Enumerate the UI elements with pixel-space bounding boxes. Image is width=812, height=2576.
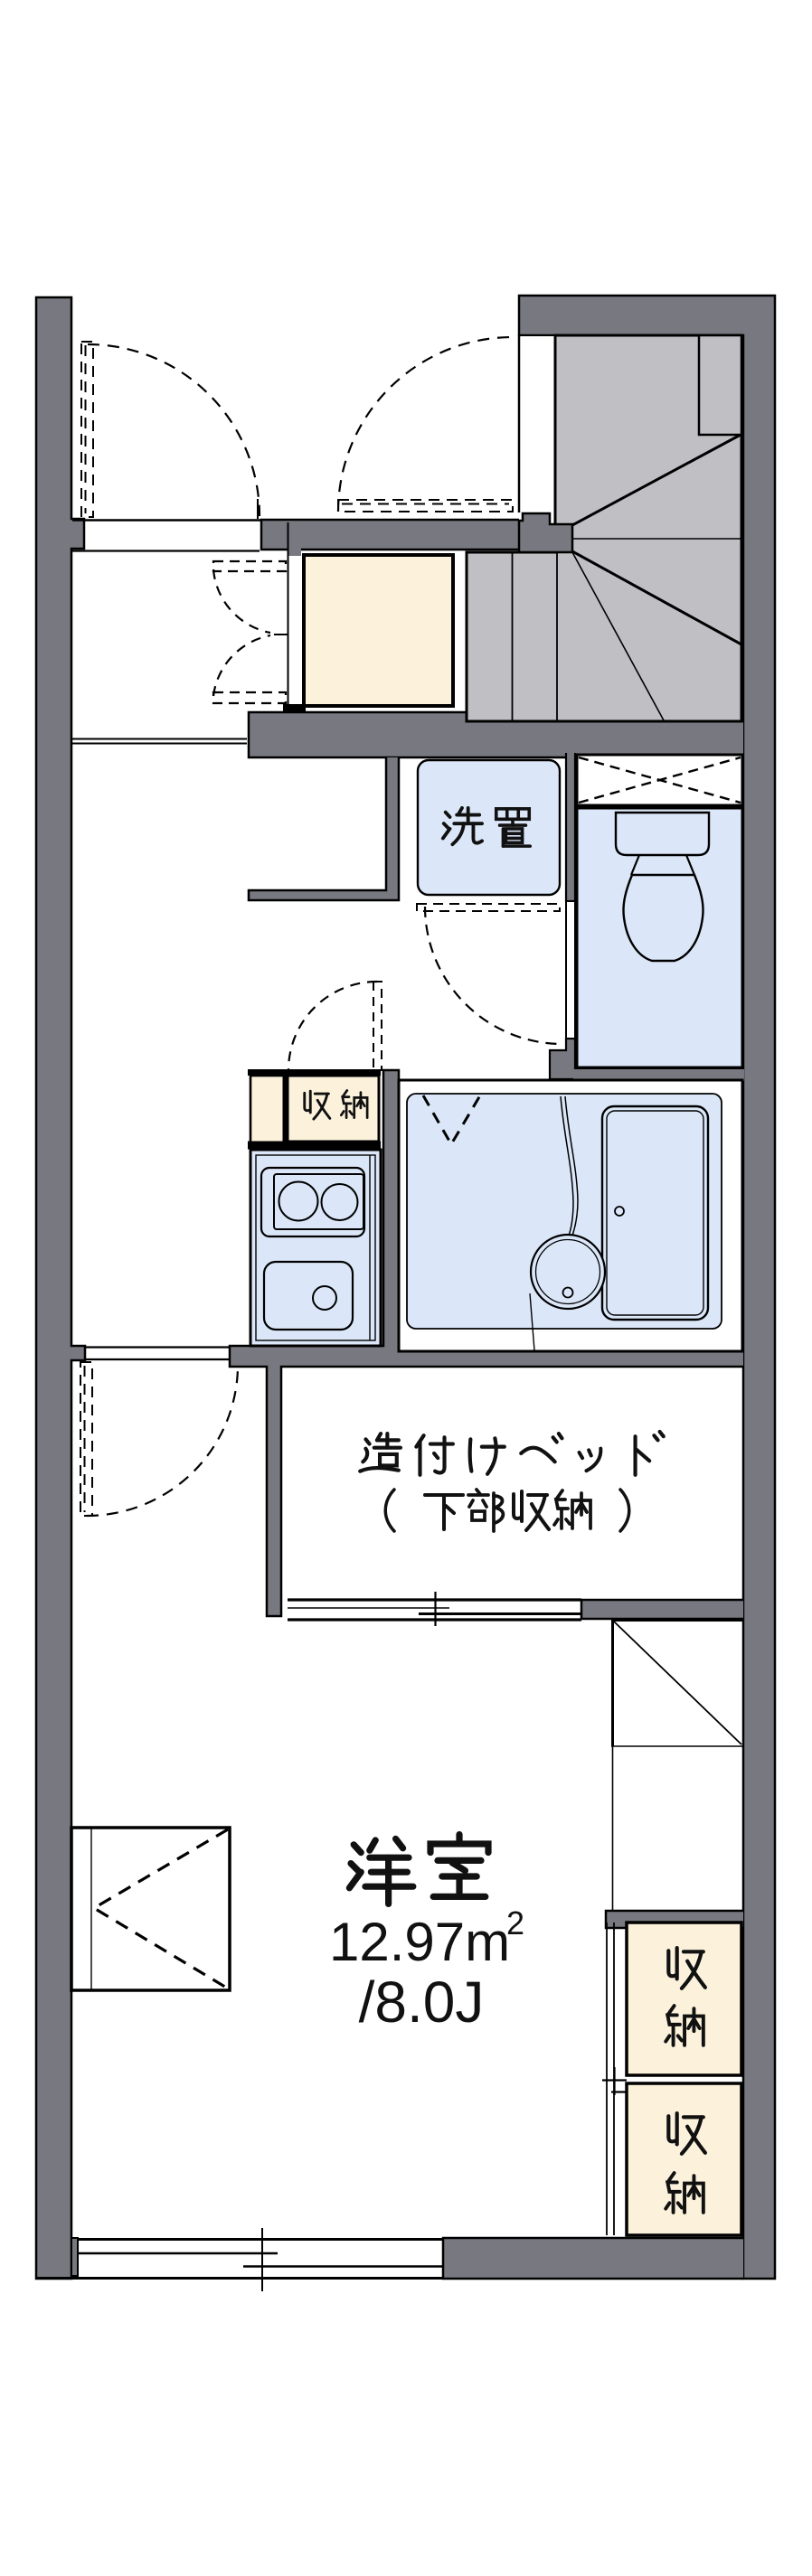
svg-text:2: 2 xyxy=(506,1904,524,1941)
svg-text:/8.0J: /8.0J xyxy=(359,1970,485,2035)
svg-text:12.97m: 12.97m xyxy=(329,1912,510,1972)
